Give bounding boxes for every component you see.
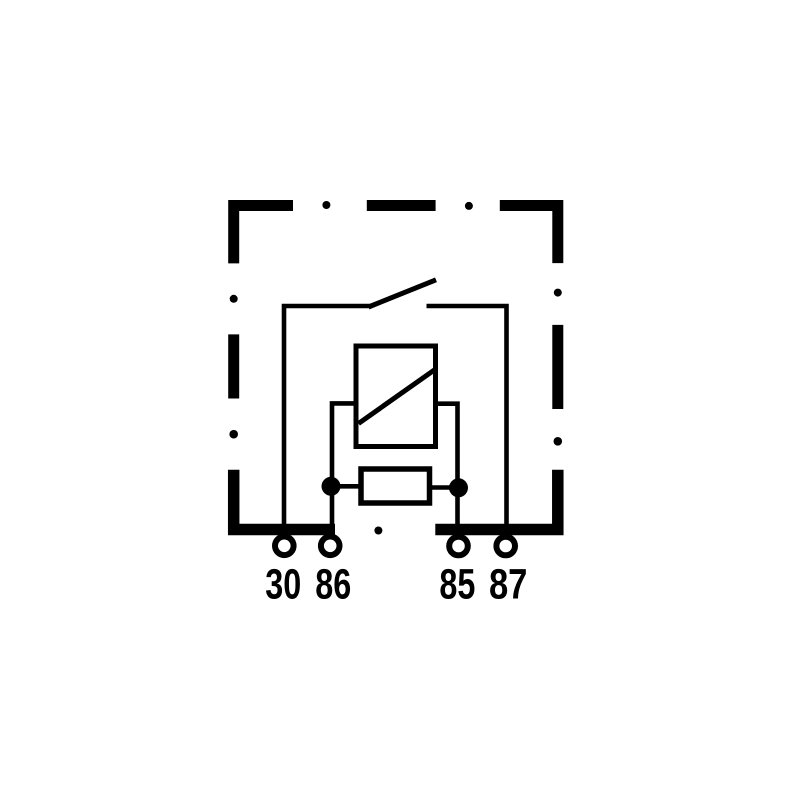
svg-text:86: 86 [315,561,351,609]
svg-text:85: 85 [439,561,475,609]
svg-text:87: 87 [489,561,528,609]
svg-text:30: 30 [265,561,301,609]
